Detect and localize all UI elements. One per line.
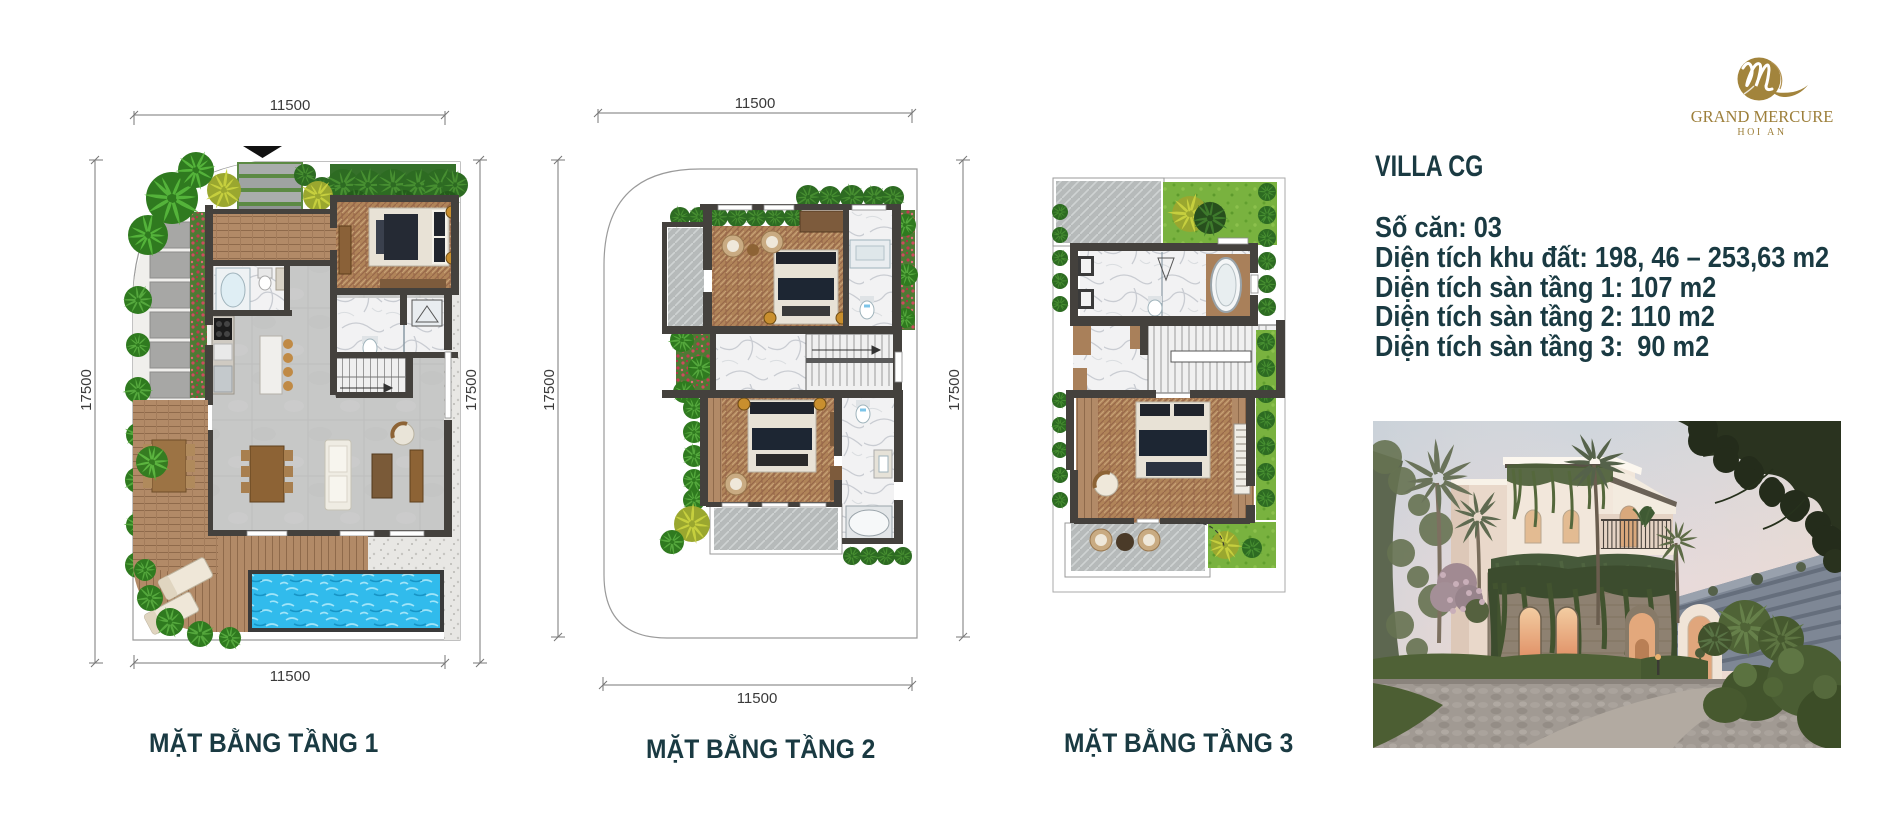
svg-text:HOI AN: HOI AN: [1737, 127, 1786, 138]
svg-text:GRAND MERCURE: GRAND MERCURE: [1691, 107, 1834, 126]
svg-text:11500: 11500: [270, 668, 311, 685]
svg-text:17500: 17500: [80, 369, 95, 411]
svg-text:17500: 17500: [463, 369, 480, 411]
svg-text:17500: 17500: [946, 369, 963, 411]
svg-text:11500: 11500: [270, 97, 311, 114]
svg-text:17500: 17500: [541, 369, 558, 411]
svg-text:11500: 11500: [735, 95, 776, 112]
svg-text:11500: 11500: [737, 690, 778, 705]
